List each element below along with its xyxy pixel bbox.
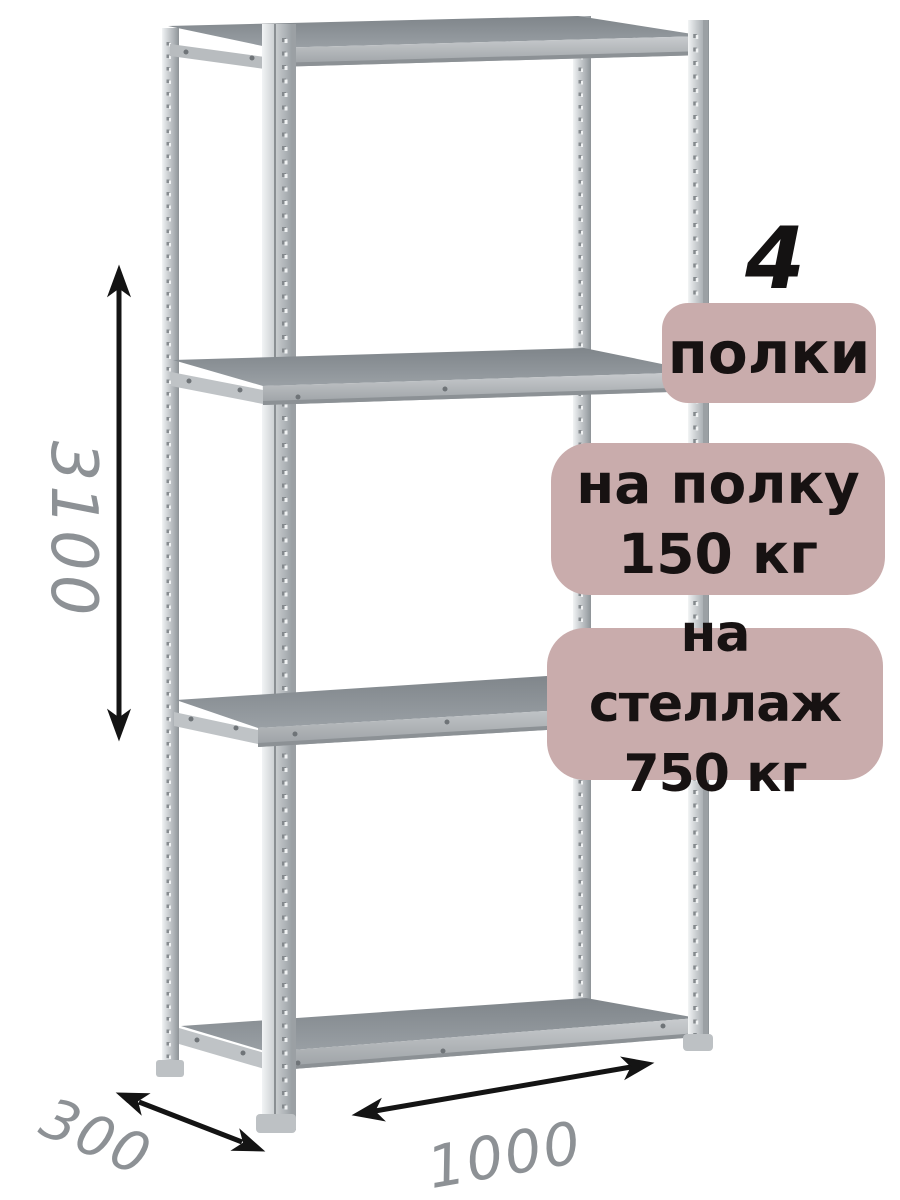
shelf-count-label: полки (668, 319, 870, 387)
rack-load-line2: 750 кг (623, 739, 806, 809)
height-dimension-label: 3100 (45, 425, 105, 635)
post-back-left (156, 28, 184, 1077)
shelf-load-line1: на полку (576, 449, 860, 519)
rack-load-badge: на стеллаж 750 кг (547, 628, 883, 780)
shelf-count-badge: полки (662, 303, 876, 403)
product-image: 3100 300 1000 4 полки на полку 150 кг на… (0, 0, 900, 1200)
shelf-load-badge: на полку 150 кг (551, 443, 885, 595)
shelf-top (168, 16, 705, 70)
rack-load-line1: на стеллаж (547, 599, 883, 739)
shelf-bottom (179, 998, 697, 1071)
post-front-left (256, 24, 296, 1133)
shelf-load-line2: 150 кг (618, 519, 818, 589)
post-foot (256, 1114, 296, 1133)
post-foot (156, 1060, 184, 1077)
height-arrow (108, 266, 130, 740)
shelf-2 (171, 348, 701, 405)
shelf-count-number: 4 (690, 216, 860, 302)
post-foot (683, 1034, 713, 1051)
